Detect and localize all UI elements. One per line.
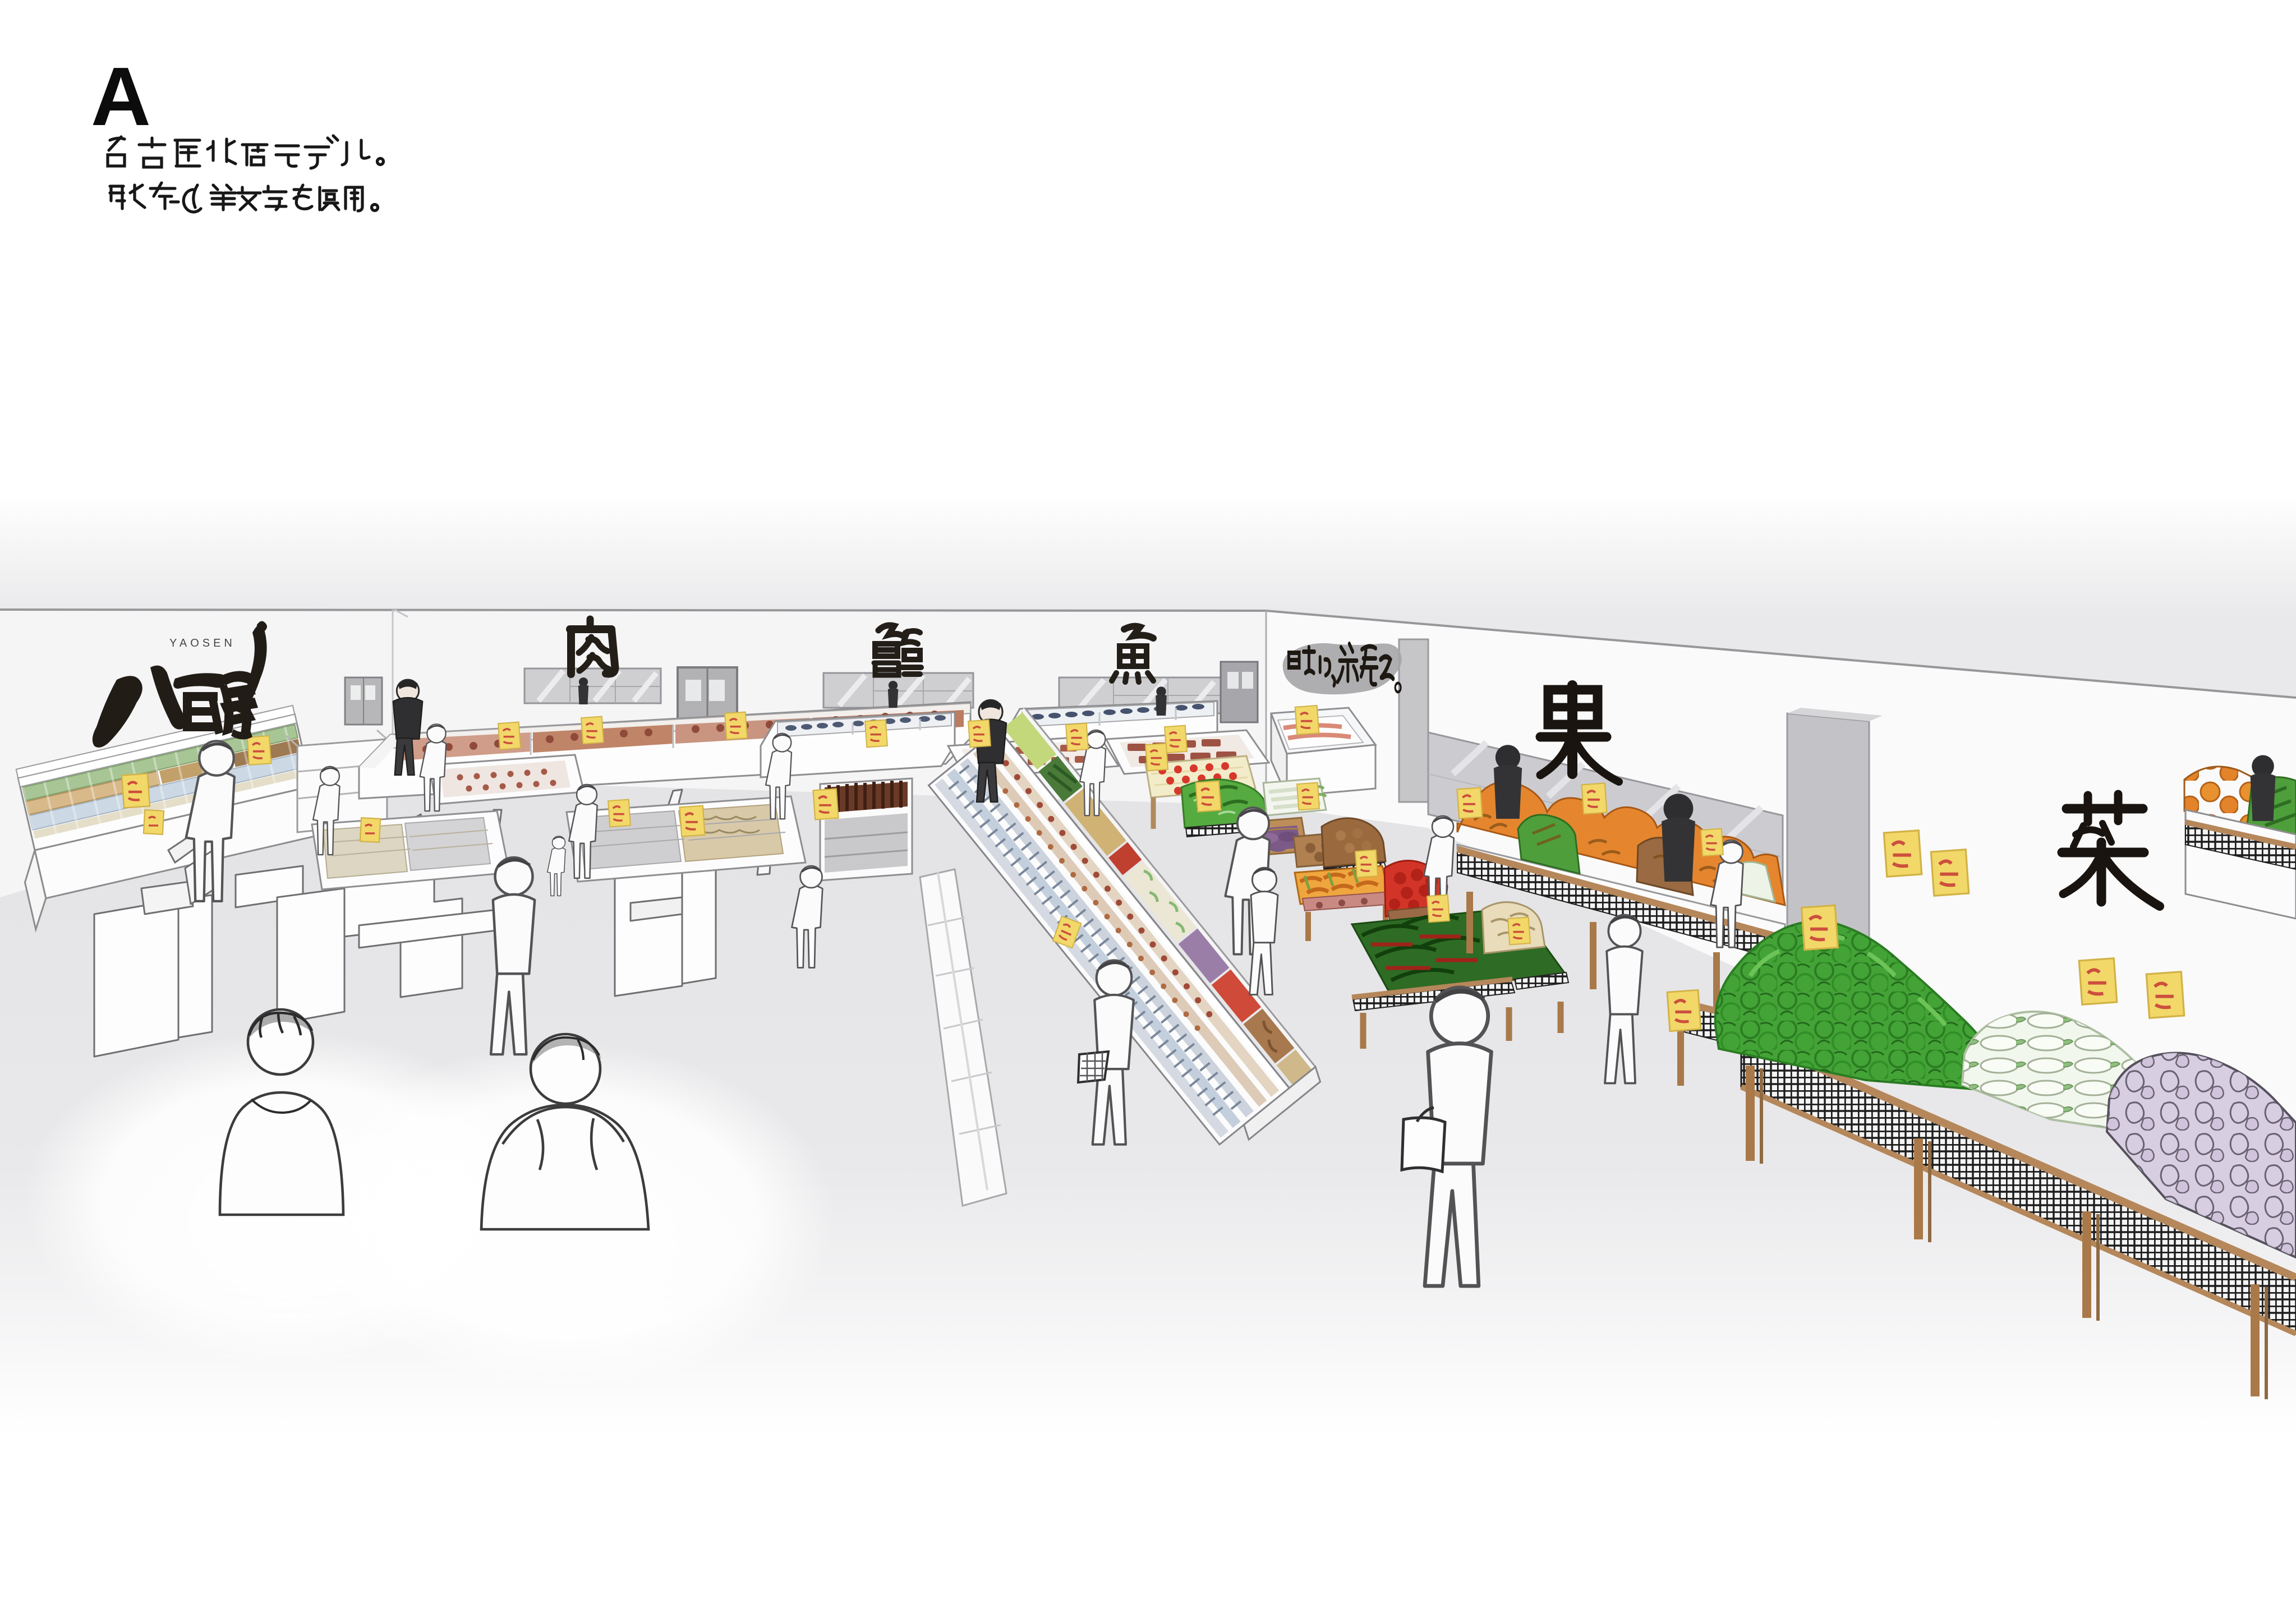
svg-text:A: A	[91, 50, 151, 143]
svg-text:YAOSEN: YAOSEN	[169, 637, 236, 649]
